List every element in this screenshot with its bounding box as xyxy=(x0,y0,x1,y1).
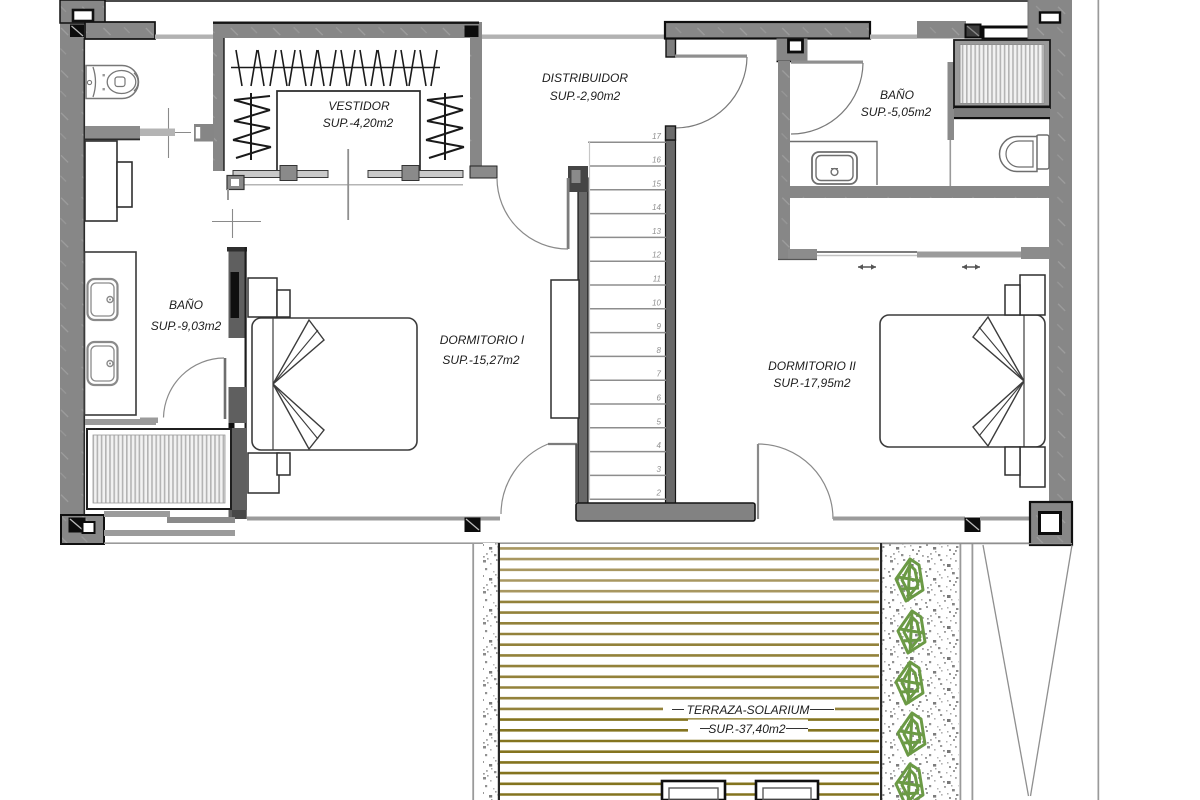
svg-text:SUP.-15,27m2: SUP.-15,27m2 xyxy=(442,353,519,367)
svg-text:13: 13 xyxy=(652,227,661,236)
svg-text:5: 5 xyxy=(657,417,662,426)
svg-text:7: 7 xyxy=(657,370,662,379)
svg-text:3: 3 xyxy=(657,465,662,474)
svg-text:17: 17 xyxy=(652,132,661,141)
svg-text:TERRAZA-SOLARIUM: TERRAZA-SOLARIUM xyxy=(687,703,810,717)
svg-text:2: 2 xyxy=(656,489,662,498)
svg-text:VESTIDOR: VESTIDOR xyxy=(328,99,390,113)
svg-text:BAÑO: BAÑO xyxy=(169,298,203,312)
svg-text:SUP.-4,20m2: SUP.-4,20m2 xyxy=(323,116,394,130)
svg-text:6: 6 xyxy=(657,394,662,403)
svg-text:SUP.-9,03m2: SUP.-9,03m2 xyxy=(151,319,222,333)
svg-text:DORMITORIO II: DORMITORIO II xyxy=(768,359,856,373)
svg-text:10: 10 xyxy=(652,298,661,307)
svg-text:9: 9 xyxy=(657,322,662,331)
svg-text:14: 14 xyxy=(652,203,661,212)
svg-text:15: 15 xyxy=(652,179,661,188)
svg-text:4: 4 xyxy=(657,441,662,450)
svg-text:SUP.-2,90m2: SUP.-2,90m2 xyxy=(550,89,621,103)
svg-text:11: 11 xyxy=(653,275,661,284)
svg-text:DORMITORIO I: DORMITORIO I xyxy=(440,333,525,347)
svg-text:SUP.-5,05m2: SUP.-5,05m2 xyxy=(861,105,932,119)
svg-text:16: 16 xyxy=(652,156,661,165)
svg-text:DISTRIBUIDOR: DISTRIBUIDOR xyxy=(542,71,628,85)
svg-text:BAÑO: BAÑO xyxy=(880,88,914,102)
svg-text:SUP.-37,40m2: SUP.-37,40m2 xyxy=(708,722,785,736)
svg-text:8: 8 xyxy=(657,346,662,355)
svg-text:12: 12 xyxy=(652,251,661,260)
svg-text:SUP.-17,95m2: SUP.-17,95m2 xyxy=(773,376,850,390)
